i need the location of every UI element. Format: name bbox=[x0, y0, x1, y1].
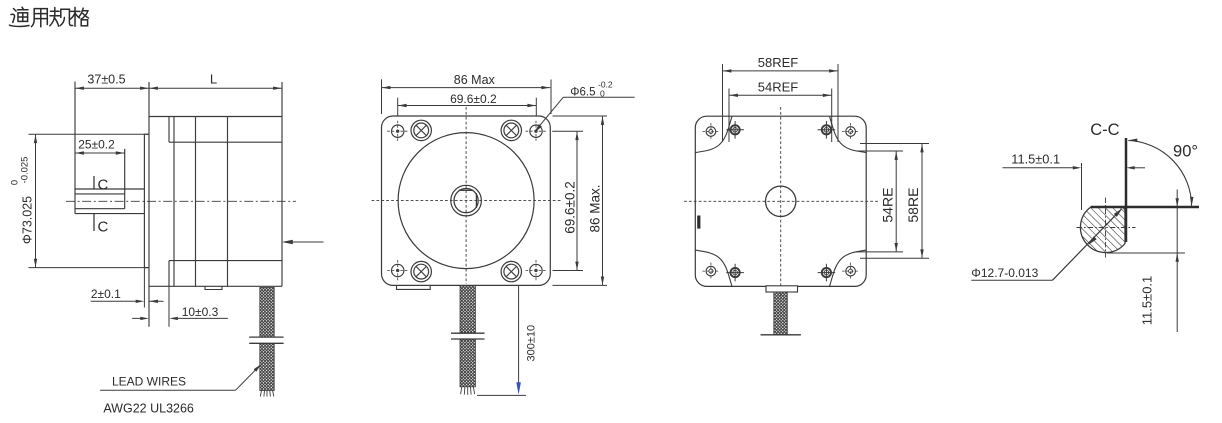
svg-text:54RE: 54RE bbox=[880, 188, 896, 223]
svg-text:AWG22 UL3266: AWG22 UL3266 bbox=[103, 402, 194, 416]
svg-text:86 Max.: 86 Max. bbox=[588, 184, 603, 232]
svg-text:86 Max: 86 Max bbox=[454, 73, 496, 87]
svg-text:10±0.3: 10±0.3 bbox=[182, 305, 219, 319]
svg-text:Φ73.025: Φ73.025 bbox=[21, 196, 35, 244]
svg-text:25±0.2: 25±0.2 bbox=[78, 138, 115, 152]
svg-text:L: L bbox=[210, 72, 217, 87]
svg-text:58REF: 58REF bbox=[758, 55, 799, 70]
svg-text:C-C: C-C bbox=[1090, 121, 1119, 139]
svg-text:2±0.1: 2±0.1 bbox=[91, 287, 121, 301]
svg-text:69.6±0.2: 69.6±0.2 bbox=[450, 92, 497, 106]
svg-text:11.5±0.1: 11.5±0.1 bbox=[1011, 152, 1060, 167]
svg-text:-0.025: -0.025 bbox=[20, 157, 31, 184]
svg-text:11.5±0.1: 11.5±0.1 bbox=[1140, 276, 1155, 326]
svg-text:C: C bbox=[98, 219, 109, 236]
svg-text:69.6±0.2: 69.6±0.2 bbox=[563, 181, 578, 233]
svg-text:Φ12.7-0.013: Φ12.7-0.013 bbox=[971, 266, 1038, 280]
svg-text:90°: 90° bbox=[1173, 143, 1198, 161]
svg-text:58RE: 58RE bbox=[905, 188, 921, 223]
svg-text:37±0.5: 37±0.5 bbox=[87, 73, 125, 87]
svg-text:54REF: 54REF bbox=[758, 79, 799, 94]
svg-text:300±10: 300±10 bbox=[526, 325, 538, 362]
svg-text:C: C bbox=[98, 177, 109, 194]
svg-text:LEAD WIRES: LEAD WIRES bbox=[112, 374, 186, 388]
